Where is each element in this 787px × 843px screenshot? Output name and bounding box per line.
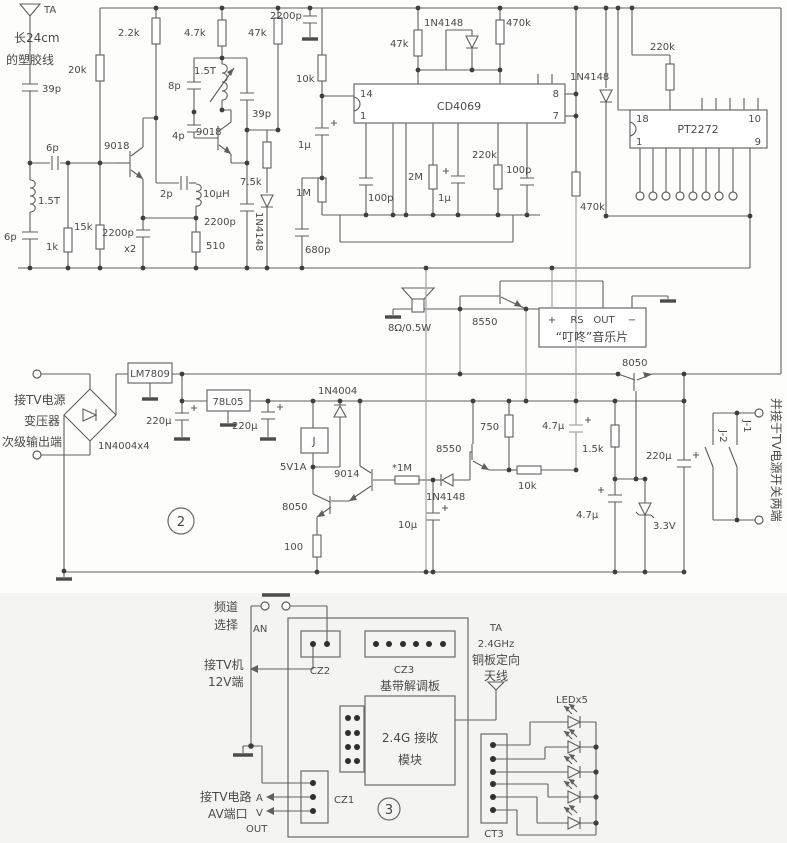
label-7k5: 7.5k: [240, 177, 262, 188]
label-9018b: 9018: [196, 127, 221, 138]
label-ledx5: LEDx5: [556, 695, 588, 706]
label-1u-a: 1μ: [298, 140, 311, 151]
label-220u-a: 220μ: [146, 416, 172, 427]
label-copper-ant-2: 天线: [484, 669, 508, 683]
speaker-box: [412, 299, 424, 312]
label-2200p-b: 2200p: [204, 217, 236, 228]
label-channel-1: 频道: [214, 600, 238, 614]
resistor-1m: [318, 178, 326, 202]
label-2200p-c: 2200p: [270, 11, 302, 22]
label-9014: 9014: [334, 469, 359, 480]
diode-1n4148-a: [261, 195, 273, 207]
resistor-7k5: [263, 142, 271, 168]
label-4k7: 4.7k: [184, 28, 206, 39]
resistor-220k-b: [666, 64, 674, 90]
label-3v3: 3.3V: [653, 521, 676, 532]
label-copper-ant-1: 铜板定向: [472, 652, 520, 667]
label-ct3: CT3: [484, 829, 503, 840]
label-lm7809: LM7809: [130, 369, 170, 380]
label-4u7-a: 4.7μ: [542, 421, 565, 432]
label-1m: 1M: [296, 188, 311, 199]
label-39p-b: 39p: [252, 109, 271, 120]
label-10uh: 10μH: [203, 189, 230, 200]
label-15k: 15k: [74, 222, 93, 233]
label-antenna-note-2: 的塑胶线: [6, 52, 54, 67]
label-pin18: 18: [636, 114, 649, 125]
label-8050a: 8050: [622, 358, 647, 369]
label-470k-a: 470k: [506, 18, 531, 29]
inductor-15t-b: [222, 64, 227, 100]
label-tv12-2: 12V端: [208, 675, 243, 689]
resistor-510: [192, 232, 200, 252]
label-2g4: 2.4GHz: [478, 639, 514, 650]
schematic-canvas: TA 长24cm 的塑胶线 39p 6p 1.5T 6p 1k 15k 20k …: [0, 0, 787, 843]
label-10u: 10μ: [398, 520, 418, 531]
label-ta2: TA: [489, 623, 502, 634]
label-tvav-2: AV端口: [208, 807, 248, 821]
label-relay-j: J: [311, 435, 315, 448]
label-1n4148-c: 1N4148: [570, 72, 609, 83]
resistor-1m-star: [395, 476, 419, 484]
label-1n4148-a: 1N4148: [253, 212, 264, 251]
label-pin8: 8: [553, 89, 559, 100]
resistor-100: [313, 535, 321, 557]
label-5v1a: 5V1A: [280, 462, 307, 473]
label-speaker: 8Ω/0.5W: [388, 323, 431, 334]
label-j1: J-1: [741, 419, 752, 433]
label-out: OUT: [246, 824, 268, 835]
resistor-220k-a: [494, 165, 502, 189]
label-chip-plus: +: [548, 315, 556, 326]
diode-1n4148-c: [600, 90, 612, 102]
label-4p: 4p: [172, 131, 185, 142]
label-x2: x2: [124, 244, 136, 255]
label-1t5-b: 1.5T: [194, 66, 217, 77]
label-pin14: 14: [360, 89, 373, 100]
label-4u7-b: 4.7μ: [576, 510, 599, 521]
resistor-20k: [96, 55, 104, 81]
label-rx-module-1: 2.4G 接收: [382, 730, 438, 745]
label-8050b: 8050: [282, 502, 307, 513]
label-cz3: CZ3: [394, 665, 414, 676]
label-chip-rs: RS: [570, 315, 583, 326]
label-1n4148-b: 1N4148: [424, 18, 463, 29]
resistor-4k7: [218, 20, 226, 46]
label-470k-b: 470k: [580, 202, 605, 213]
label-tv12-1: 接TV机: [204, 657, 244, 672]
label-pin7: 7: [553, 111, 559, 122]
label-switch-note: 并接于TV电源开关两端: [769, 398, 784, 522]
resistor-2k2: [152, 18, 160, 44]
label-9018a: 9018: [104, 141, 129, 152]
label-channel-2: 选择: [214, 618, 238, 632]
resistor-470k-a: [496, 20, 504, 44]
label-pin1b: 1: [636, 137, 642, 148]
label-78l05: 78L05: [212, 397, 243, 408]
label-20k: 20k: [68, 65, 87, 76]
diode-1n4148-b: [466, 36, 478, 48]
label-220k-a: 220k: [472, 150, 497, 161]
resistor-47k-c: [414, 30, 422, 56]
label-100p-b: 100p: [506, 165, 531, 176]
label-pin10: 10: [748, 114, 761, 125]
label-1m-star: *1M: [392, 463, 412, 474]
label-6p-a: 6p: [46, 143, 59, 154]
label-8550a: 8550: [472, 317, 497, 328]
label-1u-b: 1μ: [438, 193, 451, 204]
label-1k5: 1.5k: [582, 444, 604, 455]
label-1n4148-d: 1N4148: [426, 492, 465, 503]
label-j2: J-2: [717, 429, 728, 443]
label-chip-minus: −: [628, 315, 636, 326]
label-8p: 8p: [168, 81, 181, 92]
resistor-470k-b: [572, 172, 580, 196]
label-2200p-a: 2200p: [102, 228, 134, 239]
label-pt2272: PT2272: [677, 123, 718, 136]
label-ta: TA: [43, 5, 56, 16]
label-section2-number: 2: [177, 515, 185, 530]
label-cd4069: CD4069: [437, 100, 481, 113]
label-10k: 10k: [296, 74, 315, 85]
label-100: 100: [284, 542, 303, 553]
label-tvpower-3: 次级输出端: [2, 434, 62, 449]
label-39p: 39p: [42, 84, 61, 95]
label-pin9: 9: [755, 137, 761, 148]
label-2m: 2M: [408, 172, 423, 183]
label-220u-b: 220μ: [232, 421, 258, 432]
label-510: 510: [206, 241, 225, 252]
label-1k: 1k: [46, 242, 58, 253]
routing-wires: [426, 196, 583, 572]
label-680p: 680p: [305, 245, 330, 256]
speaker-icon: [402, 288, 434, 299]
resistor-1k5: [611, 425, 619, 447]
label-tvpower-2: 变压器: [24, 413, 60, 428]
label-220k-b: 220k: [650, 42, 675, 53]
antenna-icon: [20, 4, 40, 16]
resistor-10k-b: [517, 466, 541, 474]
label-100p-a: 100p: [368, 193, 393, 204]
resistor-750: [505, 415, 513, 437]
label-baseband: 基带解调板: [380, 679, 440, 693]
label-v-out: V: [256, 808, 263, 819]
diode-1n4148-d: [441, 474, 453, 486]
label-rx-module-2: 模块: [398, 753, 422, 767]
circuit-schematic-page: TA 长24cm 的塑胶线 39p 6p 1.5T 6p 1k 15k 20k …: [0, 0, 787, 843]
resistor-2m: [429, 165, 437, 189]
bridge-diode-icon: [83, 409, 96, 421]
label-750: 750: [480, 422, 499, 433]
label-music-chip: “叮咚”音乐片: [556, 329, 628, 344]
inductor-10uh: [196, 184, 201, 206]
resistor-10k: [318, 55, 326, 81]
label-220u-c: 220μ: [646, 451, 672, 462]
label-cz2: CZ2: [310, 666, 330, 677]
label-10k-b: 10k: [518, 481, 537, 492]
label-2k2: 2.2k: [118, 28, 140, 39]
label-cz1: CZ1: [334, 795, 354, 806]
label-pin1a: 1: [360, 111, 366, 122]
resistor-1k: [64, 228, 72, 252]
label-47k-b: 47k: [248, 28, 267, 39]
label-section3-number: 3: [385, 803, 393, 818]
label-6p-b: 6p: [4, 232, 17, 243]
diode-1n4004-b: [334, 405, 346, 417]
label-chip-out: OUT: [593, 315, 615, 326]
label-47k-c: 47k: [390, 39, 409, 50]
label-1t5-a: 1.5T: [38, 196, 61, 207]
label-1n4004: 1N4004: [318, 386, 357, 397]
label-a-out: A: [256, 793, 263, 804]
label-bridge: 1N4004x4: [98, 441, 150, 452]
label-antenna-note-1: 长24cm: [14, 31, 60, 45]
label-8550b: 8550: [436, 444, 461, 455]
zener-3v3: [636, 503, 654, 518]
label-tvav-1: 接TV电路: [200, 789, 252, 804]
inductor-15t-a: [30, 180, 35, 212]
label-an: AN: [253, 624, 267, 635]
label-2p: 2p: [160, 189, 173, 200]
label-tvpower-1: 接TV电源: [14, 392, 66, 407]
